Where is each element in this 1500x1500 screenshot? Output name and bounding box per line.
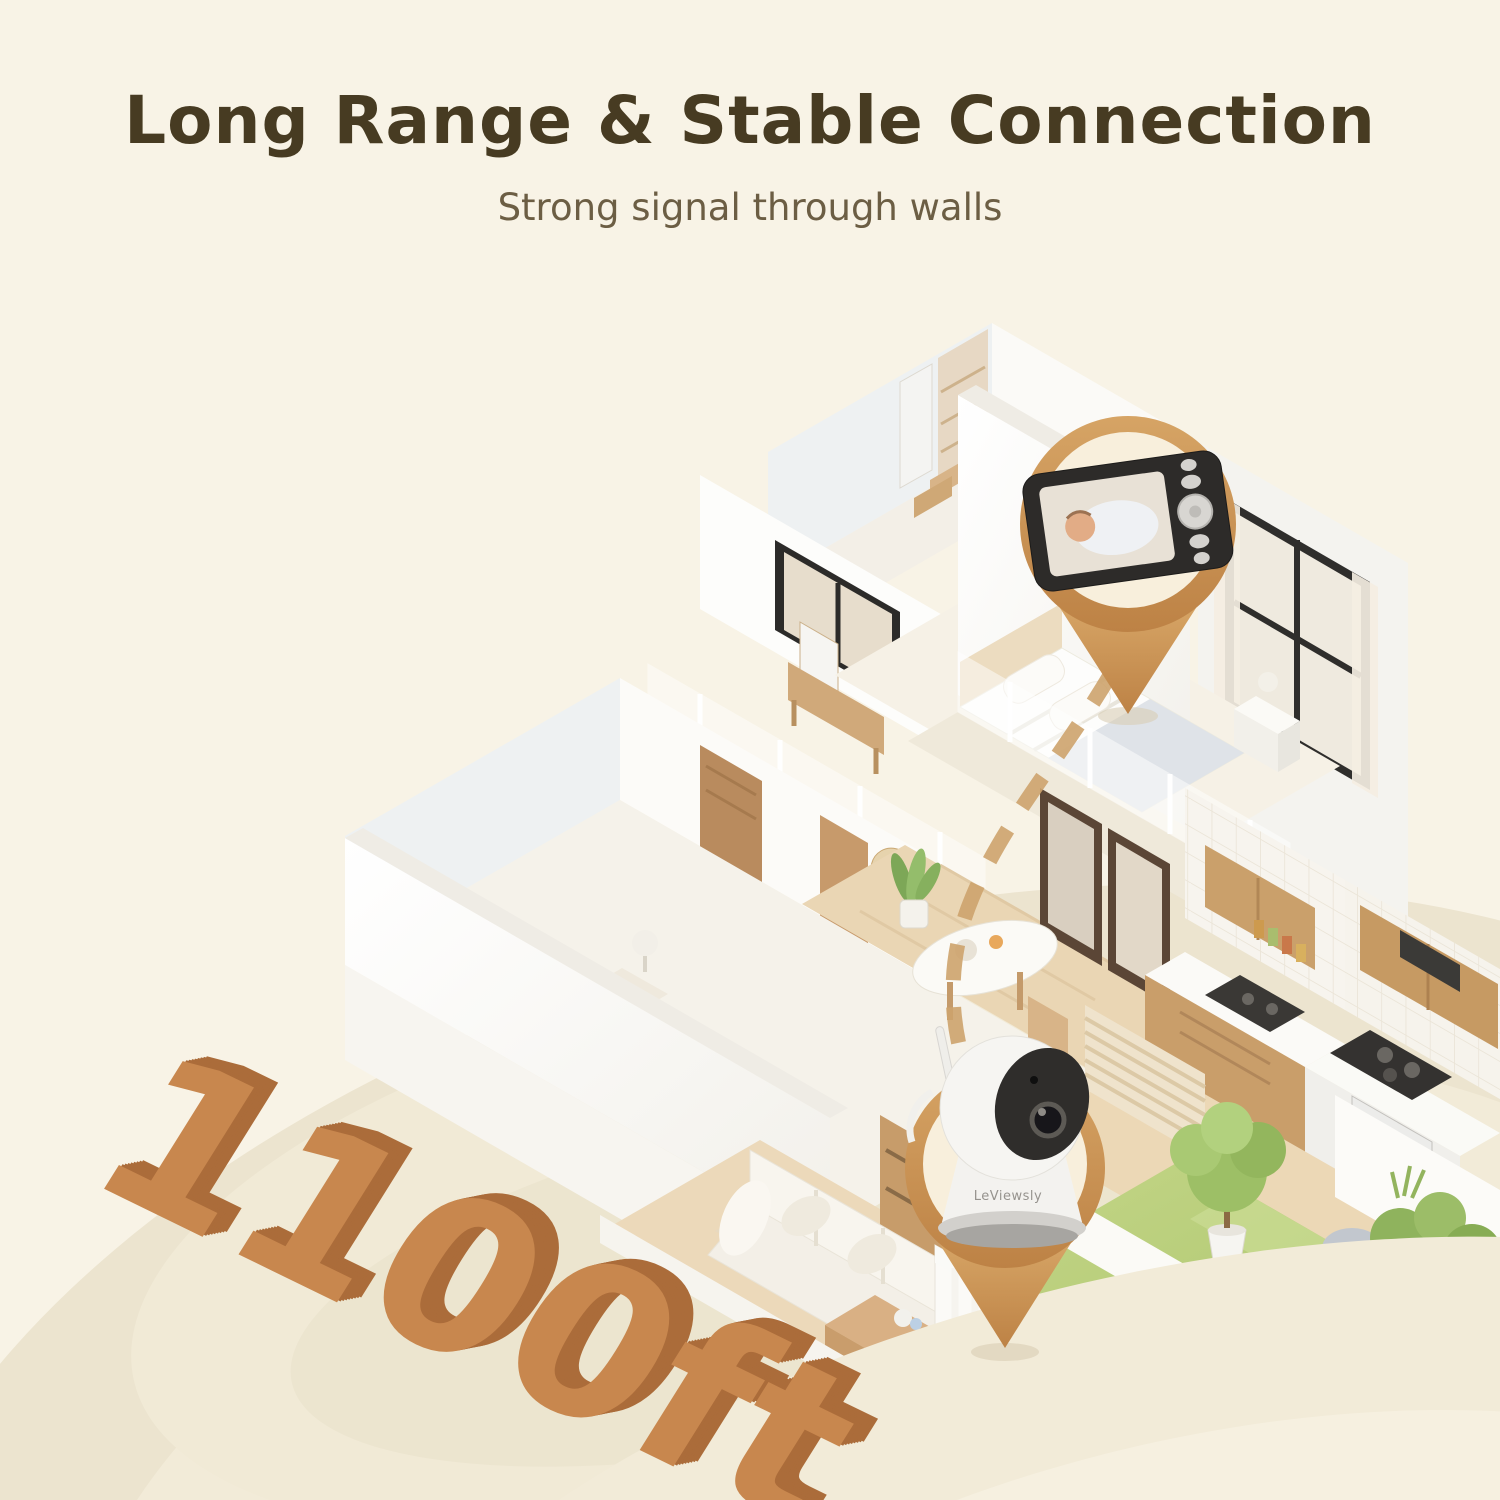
toy [910, 1318, 922, 1330]
curtain-right [1352, 572, 1378, 798]
closet-mirror [900, 364, 932, 488]
camera-logo: LeViewsly [974, 1189, 1042, 1204]
lens-glint [1038, 1108, 1046, 1116]
camera-base [946, 1224, 1078, 1248]
lamp-shade [632, 930, 658, 956]
toy [894, 1309, 912, 1327]
isometric-house-illustration: LeViewsly 1100ft 1100ft 1100ft 1100ft 11… [0, 0, 1500, 1500]
camera-mic [1030, 1076, 1038, 1084]
marketing-banner: Long Range & Stable Connection Strong si… [0, 0, 1500, 1500]
lamp [1258, 672, 1278, 692]
camera-lens [1032, 1104, 1064, 1136]
